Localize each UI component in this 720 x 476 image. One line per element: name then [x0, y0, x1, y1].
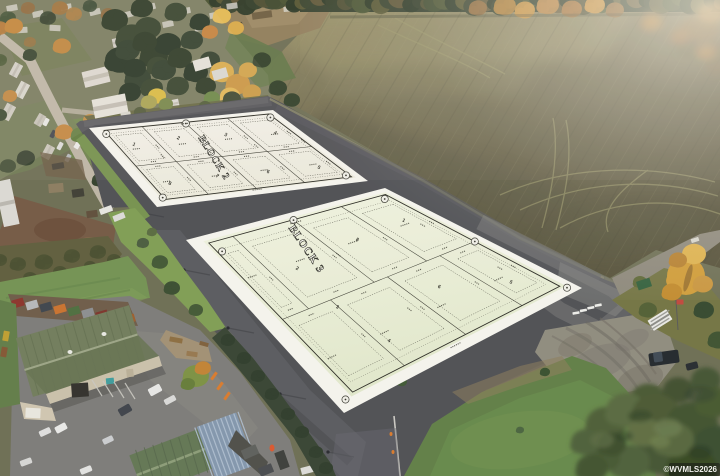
- svg-text:©WVMLS2026: ©WVMLS2026: [664, 465, 718, 474]
